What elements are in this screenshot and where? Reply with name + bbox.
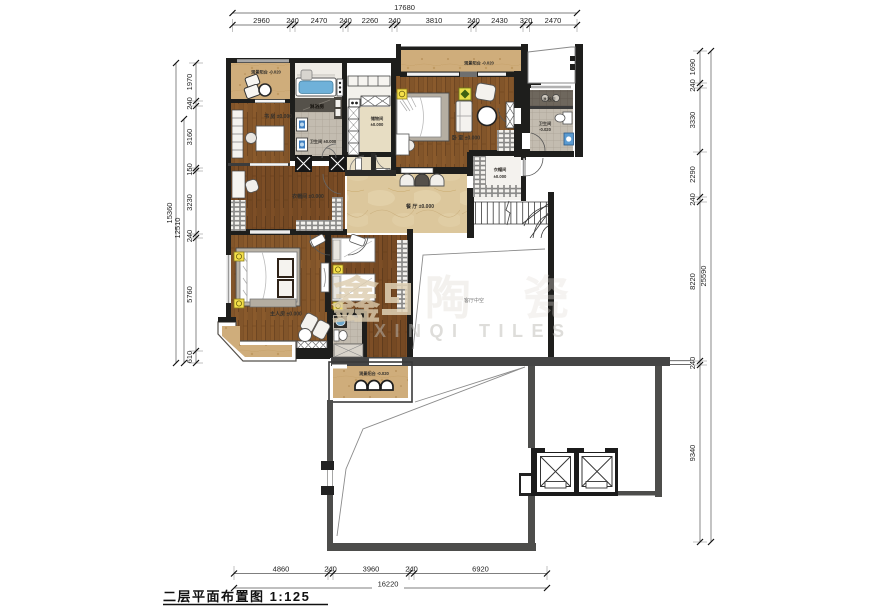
svg-text:240: 240 [185, 230, 194, 243]
svg-text:240: 240 [405, 565, 418, 574]
svg-text:8220: 8220 [688, 273, 697, 290]
svg-text:淋浴房: 淋浴房 [310, 103, 325, 110]
svg-text:240: 240 [688, 357, 697, 370]
svg-text:二层平面布置图 1:125: 二层平面布置图 1:125 [163, 589, 310, 604]
svg-text:衣帽间 ±0.000: 衣帽间 ±0.000 [292, 193, 324, 200]
svg-text:5760: 5760 [185, 286, 194, 303]
svg-text:-0.020: -0.020 [539, 127, 552, 132]
svg-text:240: 240 [688, 79, 697, 92]
svg-text:240: 240 [688, 193, 697, 206]
svg-text:150: 150 [185, 163, 194, 176]
svg-text:240: 240 [286, 16, 299, 25]
svg-text:卫生间 ±0.000: 卫生间 ±0.000 [310, 138, 337, 145]
svg-text:淋浴房: 淋浴房 [542, 96, 556, 103]
svg-text:客厅中空: 客厅中空 [464, 297, 484, 304]
svg-text:3330: 3330 [688, 112, 697, 129]
svg-text:±0.000: ±0.000 [494, 174, 507, 179]
svg-text:3230: 3230 [185, 194, 194, 211]
svg-text:320: 320 [520, 16, 533, 25]
svg-text:16220: 16220 [378, 580, 399, 589]
svg-text:240: 240 [388, 16, 401, 25]
svg-text:卧 室 ±0.000: 卧 室 ±0.000 [452, 135, 480, 142]
svg-text:2260: 2260 [362, 16, 379, 25]
svg-text:3160: 3160 [185, 129, 194, 146]
svg-text:观景阳台 -0.020: 观景阳台 -0.020 [251, 69, 281, 76]
svg-text:240: 240 [324, 565, 337, 574]
svg-text:240: 240 [467, 16, 480, 25]
svg-text:4860: 4860 [273, 565, 290, 574]
svg-text:3960: 3960 [363, 565, 380, 574]
svg-text:观景阳台 -0.020: 观景阳台 -0.020 [464, 60, 494, 67]
svg-text:卫生间: 卫生间 [539, 120, 552, 127]
svg-text:2470: 2470 [311, 16, 328, 25]
svg-text:储物间: 储物间 [370, 115, 384, 122]
svg-text:1970: 1970 [185, 74, 194, 91]
svg-text:17680: 17680 [394, 3, 415, 12]
svg-text:±0.000: ±0.000 [371, 122, 384, 127]
svg-text:25590: 25590 [699, 266, 708, 287]
svg-text:XINQI TILES: XINQI TILES [374, 321, 573, 341]
svg-text:3810: 3810 [426, 16, 443, 25]
svg-text:餐 厅 ±0.000: 餐 厅 ±0.000 [405, 203, 434, 210]
svg-text:衣帽间: 衣帽间 [494, 166, 507, 173]
svg-text:书 房 ±0.000: 书 房 ±0.000 [264, 113, 292, 120]
svg-text:观景阳台 -0.020: 观景阳台 -0.020 [359, 370, 389, 377]
svg-text:2290: 2290 [688, 166, 697, 183]
svg-text:2430: 2430 [491, 16, 508, 25]
svg-text:6920: 6920 [472, 565, 489, 574]
svg-text:2470: 2470 [545, 16, 562, 25]
svg-text:2960: 2960 [253, 16, 270, 25]
svg-text:主人房 ±0.000: 主人房 ±0.000 [270, 311, 302, 318]
svg-text:610: 610 [185, 351, 194, 364]
svg-text:240: 240 [339, 16, 352, 25]
svg-text:1690: 1690 [688, 59, 697, 76]
svg-text:12510: 12510 [173, 218, 182, 239]
svg-text:9340: 9340 [688, 445, 697, 462]
svg-text:瓷: 瓷 [523, 272, 569, 324]
svg-text:240: 240 [185, 97, 194, 110]
